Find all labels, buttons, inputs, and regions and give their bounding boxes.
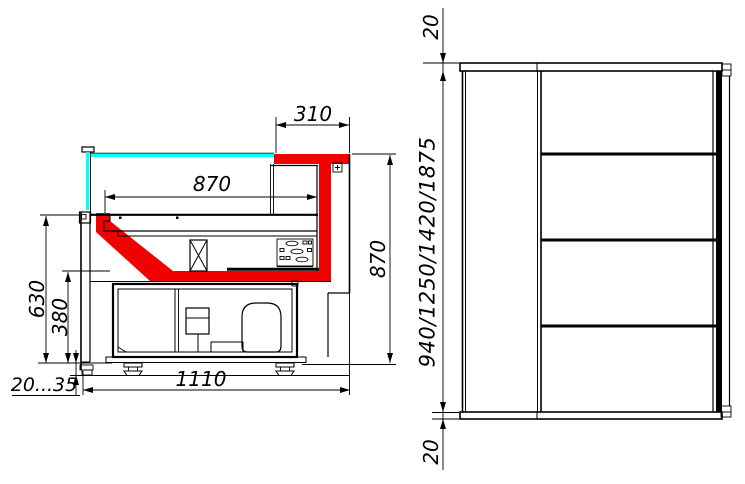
adjustable-foot-rear: [276, 363, 294, 376]
top-panel: [460, 63, 722, 71]
dim-overall-depth: 1110: [176, 367, 227, 391]
glass-pane-vertical: [86, 152, 89, 210]
adjustable-foot-front: [124, 363, 142, 376]
red-back-column: [319, 164, 331, 281]
display-deck: [91, 215, 318, 236]
section-view: 310 870 870: [11, 102, 396, 396]
dim-base-height-group: 380: [48, 271, 110, 363]
dim-foot-range: 20...35: [11, 374, 77, 396]
dim-front-height-group: 630: [25, 215, 112, 363]
dim-top-panel: 20: [419, 14, 443, 39]
technical-drawing: 310 870 870: [0, 0, 745, 484]
evaporator-fan-unit: [277, 239, 313, 266]
side-view: 20 940/1250/1420/1875 20: [415, 8, 731, 470]
dim-deck-depth-group: 870: [105, 172, 317, 213]
starter-box: [186, 308, 209, 334]
compartment-outer: [113, 284, 297, 357]
side-dimensions: 20 940/1250/1420/1875 20: [415, 8, 459, 470]
glass-shelf-horizontal: [91, 154, 274, 157]
side-body: [460, 63, 731, 419]
bottom-panel: [460, 412, 722, 419]
dim-base-height: 380: [48, 298, 72, 336]
glass-front: [82, 147, 274, 212]
mid-machinery: [190, 239, 319, 271]
rear-wall-bar: [716, 71, 722, 412]
drain-tray: [211, 342, 243, 352]
glass-top-cap: [82, 147, 94, 152]
dim-deck-depth: 870: [193, 172, 231, 196]
dim-bottom-panel: 20: [419, 439, 443, 464]
dim-front-height: 630: [25, 280, 49, 318]
condensing-compartment: [113, 281, 298, 357]
dim-canopy-depth: 310: [294, 102, 332, 126]
front-base-bracket: [80, 365, 93, 370]
red-canopy: [274, 154, 350, 164]
dim-height-options: 940/1250/1420/1875: [415, 137, 439, 368]
dim-canopy-depth-group: 310: [276, 102, 350, 153]
dim-section-height: 870: [366, 240, 390, 278]
compressor: [242, 303, 281, 352]
drawing-canvas: 310 870 870: [0, 0, 745, 484]
dim-overall-depth-group: 1110: [83, 293, 350, 395]
back-structure: [270, 154, 350, 357]
compartment-inner: [118, 289, 292, 352]
